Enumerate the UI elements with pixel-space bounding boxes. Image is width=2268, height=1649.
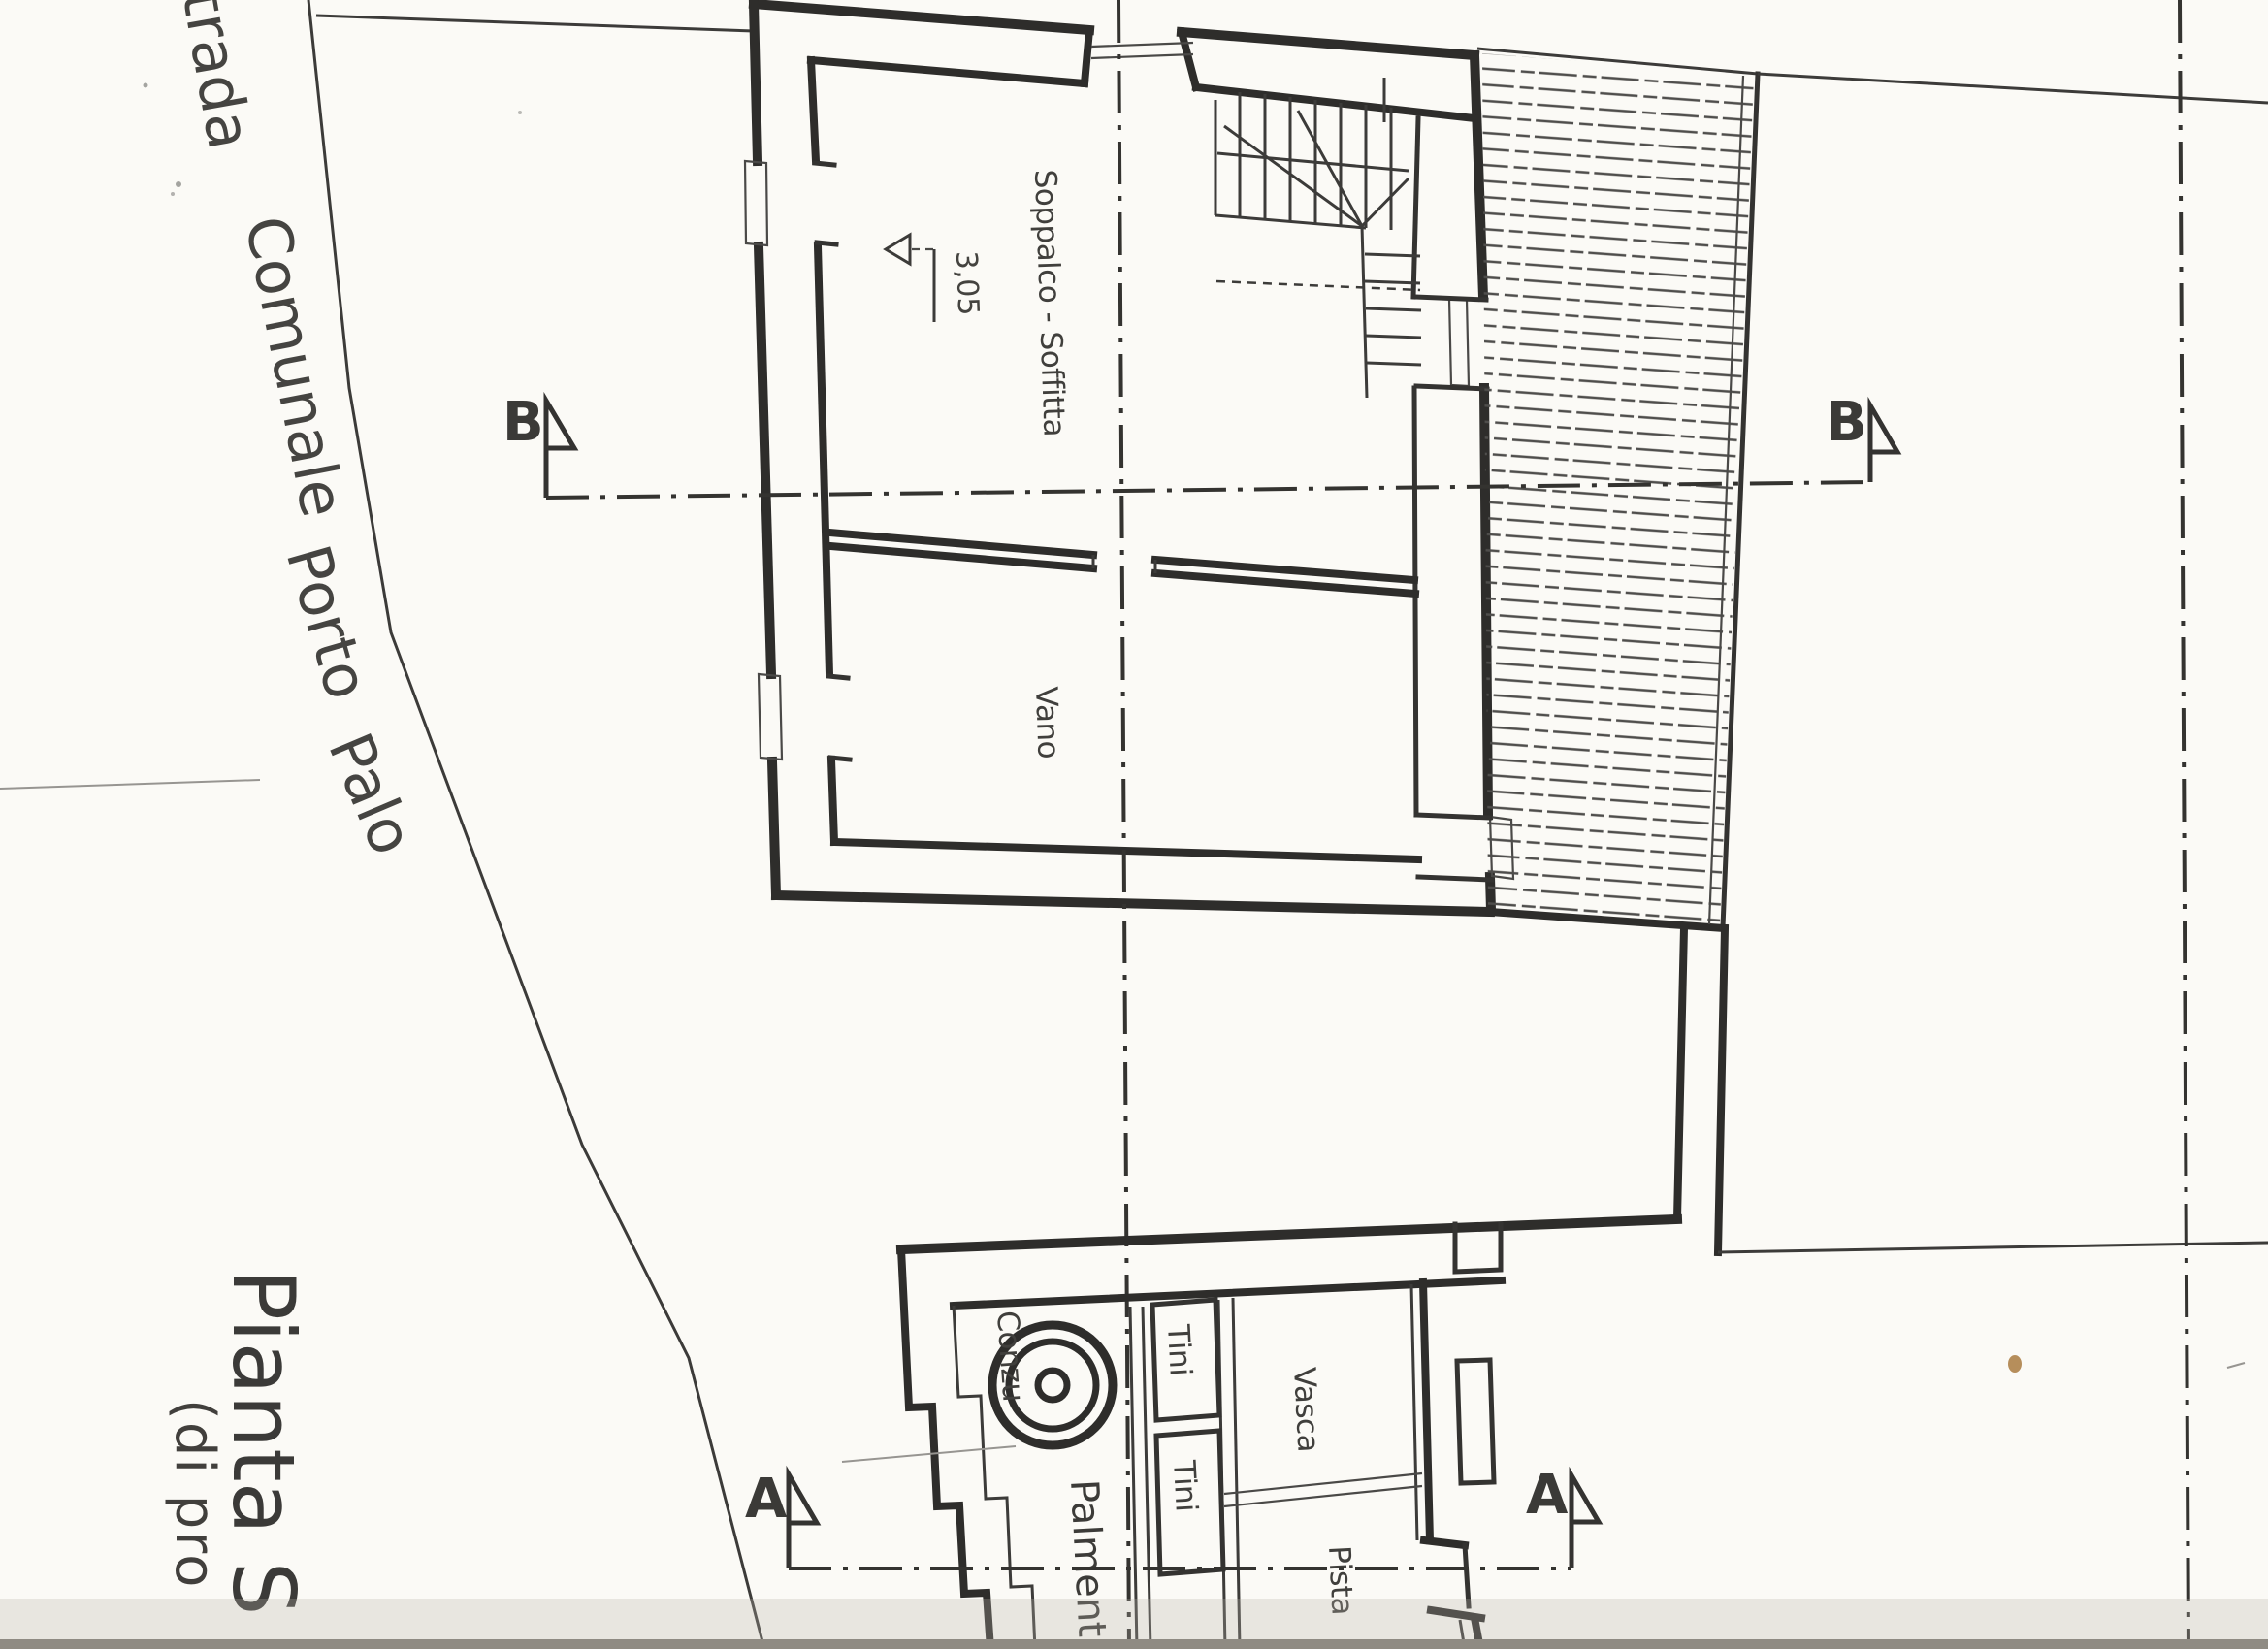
window-reveal-2 <box>1416 386 1487 389</box>
right-wall-inner-2 <box>1414 388 1416 815</box>
speck <box>518 111 522 114</box>
section-b-letter-left: B <box>502 391 544 454</box>
window-jamb-stub-2 <box>817 242 836 244</box>
section-a-letter-right: A <box>1526 1464 1569 1527</box>
label-tini-lower: Tini <box>1166 1459 1204 1513</box>
speck <box>144 83 148 88</box>
title-text: Pianta S <box>213 1269 313 1616</box>
window-reveal-3 <box>1416 815 1490 818</box>
stair-tread-v <box>1366 336 1421 338</box>
window-jamb-stub-4 <box>830 758 850 760</box>
stair-tread-v <box>1365 281 1420 283</box>
stain-dot <box>2008 1355 2022 1373</box>
window-reveal-4 <box>1418 877 1492 880</box>
label-tini-upper: Tini <box>1160 1323 1198 1377</box>
window-reveal-1 <box>1415 297 1486 300</box>
room-label-vano: Vano <box>1028 686 1066 760</box>
window-jamb-stub-3 <box>828 676 848 678</box>
left-wall-outer-1 <box>754 4 758 161</box>
left-wall-outer-3 <box>772 761 776 895</box>
speck <box>176 181 181 187</box>
paper-background <box>0 0 2268 1649</box>
palmento-door-jamb-upper <box>1424 1540 1465 1545</box>
left-wall-inner-3 <box>831 760 834 842</box>
floor-plan-canvas: trada Comunale Porto Palo <box>0 0 2268 1649</box>
section-a-letter-left: A <box>745 1468 788 1531</box>
window-jamb-stub-1 <box>815 163 834 165</box>
scanned-floor-plan-page: trada Comunale Porto Palo <box>0 0 2268 1649</box>
door-jamb-left <box>1085 30 1089 83</box>
dimension-value: 3,05 <box>949 250 985 316</box>
section-b-letter-right: B <box>1826 391 1867 454</box>
stair-tread-v <box>1365 254 1420 256</box>
label-conzu: Conzu <box>989 1309 1030 1403</box>
label-vasca: Vasca <box>1286 1367 1326 1453</box>
roof-hatch-area <box>1482 53 1754 924</box>
stair-tread-v <box>1367 363 1421 365</box>
subtitle-text: (di pro <box>163 1399 226 1589</box>
scan-shadow-strip <box>0 1639 2268 1649</box>
left-wall-inner-1 <box>811 60 816 161</box>
stair-tread-v <box>1366 308 1421 310</box>
speck <box>171 192 175 196</box>
